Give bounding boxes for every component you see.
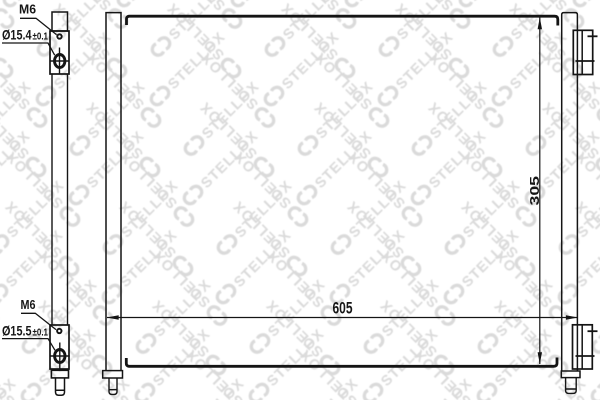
svg-text:±0.1: ±0.1: [33, 31, 49, 42]
svg-text:305: 305: [527, 176, 542, 206]
svg-text:±0.1: ±0.1: [33, 327, 49, 338]
svg-text:Ø15.5: Ø15.5: [2, 322, 32, 338]
svg-text:M6: M6: [21, 297, 36, 312]
svg-text:605: 605: [333, 300, 353, 318]
svg-text:Ø15.4: Ø15.4: [2, 26, 32, 42]
svg-text:M6: M6: [19, 2, 36, 17]
